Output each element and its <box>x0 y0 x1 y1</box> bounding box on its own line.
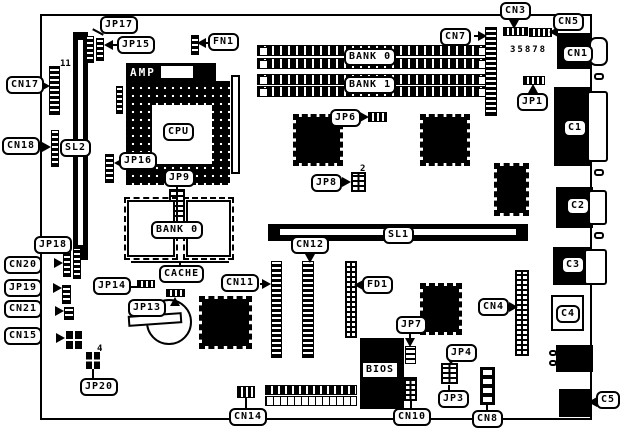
jp14-leader <box>131 286 137 288</box>
socket-right-strip <box>231 75 240 174</box>
label-cn15: CN15 <box>4 327 42 345</box>
cn14-jumper <box>237 386 255 398</box>
cn10-connector <box>404 377 417 401</box>
jp15-arrow <box>104 40 113 50</box>
jp20-block <box>86 352 100 369</box>
cn21-jumper <box>64 307 74 320</box>
label-cn3: CN3 <box>500 2 531 20</box>
cn15-arrow <box>56 333 65 343</box>
jp14-jumper <box>137 280 155 288</box>
label-cpu: CPU <box>163 123 194 141</box>
label-simm-bank0: BANK 0 <box>344 48 396 66</box>
label-jp20: JP20 <box>80 378 118 396</box>
label-bios: BIOS <box>361 361 399 379</box>
label-cn14: CN14 <box>229 408 267 426</box>
jp8-arrow <box>342 177 351 187</box>
label-jp8: JP8 <box>311 174 342 192</box>
label-cache-bank0: BANK 0 <box>151 221 203 239</box>
jp4-jp3-jumper <box>441 363 458 384</box>
c2-port <box>588 190 607 225</box>
fn1-arrow <box>197 38 206 48</box>
cn8-connector <box>480 367 495 405</box>
label-jp15: JP15 <box>117 36 155 54</box>
jp17-jumper <box>86 36 94 63</box>
jp8-jumper <box>351 172 366 192</box>
label-jp19: JP19 <box>4 279 42 297</box>
label-cn18: CN18 <box>2 137 40 155</box>
label-jp1: JP1 <box>517 93 548 111</box>
cn18-arrow <box>42 142 51 152</box>
label-cn1: CN1 <box>562 45 593 63</box>
label-sl1: SL1 <box>383 226 414 244</box>
jp19-jumper <box>62 285 71 304</box>
c3-port <box>584 249 607 285</box>
jp7-jumper <box>405 346 416 364</box>
cn11-arrow <box>262 279 271 289</box>
pin-marker-4: 4 <box>97 345 102 354</box>
cn4-connector <box>515 270 529 356</box>
label-sl2: SL2 <box>60 139 91 157</box>
edge-tab-5 <box>549 360 557 366</box>
label-cn20: CN20 <box>4 256 42 274</box>
amp-window <box>161 66 193 78</box>
edge-tab-2 <box>594 169 604 176</box>
cn3-arrow <box>509 20 519 29</box>
label-c5: C5 <box>596 391 620 409</box>
label-cache: CACHE <box>159 265 204 283</box>
label-c4: C4 <box>556 305 580 323</box>
c1-port <box>587 91 608 162</box>
label-cn17: CN17 <box>6 76 44 94</box>
edge-tab-1 <box>594 73 604 80</box>
label-jp16: JP16 <box>119 152 157 170</box>
label-cn12: CN12 <box>291 236 329 254</box>
label-simm-bank1: BANK 1 <box>344 76 396 94</box>
chip-qfp-2 <box>420 114 470 166</box>
cn12-slot <box>302 261 314 358</box>
cn20-arrow <box>54 258 63 268</box>
cn15-block <box>66 331 82 349</box>
pin-marker-2: 2 <box>360 165 365 174</box>
label-c3: C3 <box>561 256 585 274</box>
label-jp18: JP18 <box>34 236 72 254</box>
label-c1: C1 <box>563 119 587 137</box>
cn4-arrow <box>509 302 518 312</box>
label-jp17: JP17 <box>100 16 138 34</box>
chip-qfp-4 <box>199 296 252 349</box>
amp-text: AMP <box>130 67 156 78</box>
cn18-connector <box>51 130 59 167</box>
board-number: 35878 <box>510 46 547 55</box>
cn17-connector <box>49 66 60 115</box>
label-jp13: JP13 <box>128 299 166 317</box>
label-jp9: JP9 <box>164 169 195 187</box>
jp1-arrow <box>528 84 538 93</box>
motherboard-diagram: AMP <box>0 0 626 434</box>
cn12-arrow <box>305 254 315 263</box>
jp13-arrow <box>170 297 180 306</box>
front-panel-header-bottom <box>265 396 357 406</box>
label-cn10: CN10 <box>393 408 431 426</box>
front-panel-header-top <box>265 385 357 395</box>
jp13-jumper <box>166 289 185 297</box>
jp19-arrow <box>53 283 62 293</box>
cn21-arrow <box>55 306 64 316</box>
label-cn5: CN5 <box>553 13 584 31</box>
fd1-connector <box>345 261 357 338</box>
jp15-jumper <box>96 38 104 61</box>
jp18-jumper <box>73 248 81 279</box>
jp7-arrow <box>405 338 415 347</box>
label-cn4: CN4 <box>478 298 509 316</box>
cn7-arrow <box>478 31 487 41</box>
chip-qfp-3 <box>494 163 529 216</box>
jp16-jumper <box>105 154 114 183</box>
label-jp7: JP7 <box>396 316 427 334</box>
label-jp14: JP14 <box>93 277 131 295</box>
jp6-arrow <box>360 112 369 122</box>
label-fd1: FD1 <box>362 276 393 294</box>
label-jp4: JP4 <box>446 344 477 362</box>
label-cn11: CN11 <box>221 274 259 292</box>
label-c2: C2 <box>566 197 590 215</box>
label-fn1: FN1 <box>208 33 239 51</box>
label-jp6: JP6 <box>330 109 361 127</box>
label-cn7: CN7 <box>440 28 471 46</box>
edge-tab-3 <box>594 232 604 239</box>
label-cn8: CN8 <box>472 410 503 428</box>
edge-connector-unlabeled <box>556 345 593 372</box>
jp6-jumper <box>368 112 387 122</box>
label-cn21: CN21 <box>4 300 42 318</box>
label-jp3: JP3 <box>438 390 469 408</box>
socket-side-connector <box>116 86 123 114</box>
pin-marker-11: 11 <box>60 60 71 69</box>
edge-tab-4 <box>549 350 557 356</box>
cn11-slot <box>271 261 282 358</box>
